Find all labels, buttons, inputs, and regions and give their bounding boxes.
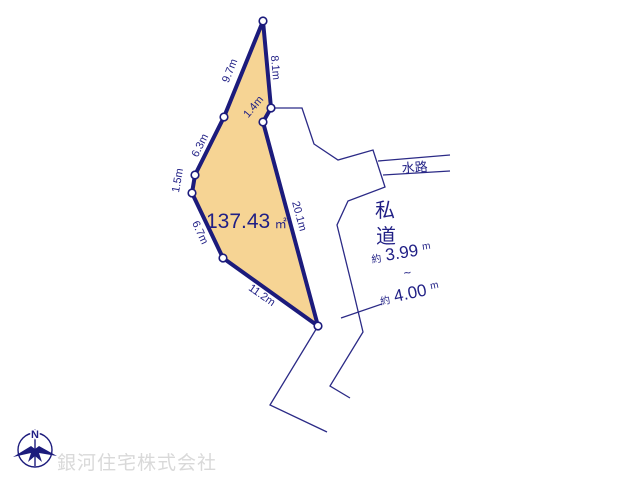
- vertex-marker: [259, 118, 267, 126]
- road-width-tilde: ~: [402, 264, 412, 280]
- vertex-marker: [267, 104, 275, 112]
- road-width-min-value: 3.99: [384, 241, 420, 265]
- plot-map-svg: 9.7m 8.1m 1.4m 20.1m 11.2m 6.7m 1.5m 6.3…: [0, 0, 640, 480]
- road-width-max: 約 4.00 m: [378, 278, 441, 309]
- vertex-marker: [314, 322, 322, 330]
- vertex-marker: [219, 254, 227, 262]
- road-width-leader-line: [341, 304, 382, 318]
- plot-map-canvas: 9.7m 8.1m 1.4m 20.1m 11.2m 6.7m 1.5m 6.3…: [0, 0, 640, 480]
- road-width-min-unit: m: [421, 241, 431, 253]
- road-width-max-unit: m: [429, 280, 439, 292]
- area-value: 137.43: [206, 210, 270, 233]
- road-left-boundary-path: [270, 326, 327, 432]
- private-road-char-1: 私: [375, 199, 395, 222]
- waterway-label: 水路: [401, 159, 428, 176]
- compass: N: [13, 429, 57, 467]
- road-width-max-prefix: 約: [379, 293, 391, 308]
- vertex-marker: [191, 171, 199, 179]
- compass-north-label: N: [31, 429, 39, 441]
- land-parcel-shape: [192, 21, 318, 326]
- road-width-min-prefix: 約: [370, 252, 382, 266]
- vertex-marker: [188, 189, 196, 197]
- vertex-marker: [259, 17, 267, 25]
- area-unit: ㎡: [275, 217, 287, 231]
- road-width-max-value: 4.00: [392, 280, 428, 305]
- private-road-label: 私 道: [375, 199, 396, 248]
- road-width-range: 約 3.99 m ~ 約 4.00 m: [370, 239, 441, 309]
- vertex-marker: [220, 113, 228, 121]
- edge-label-8-1m: 8.1m: [268, 55, 282, 80]
- company-watermark: 銀河住宅株式会社: [57, 452, 217, 474]
- edge-label-1-5m: 1.5m: [170, 167, 186, 193]
